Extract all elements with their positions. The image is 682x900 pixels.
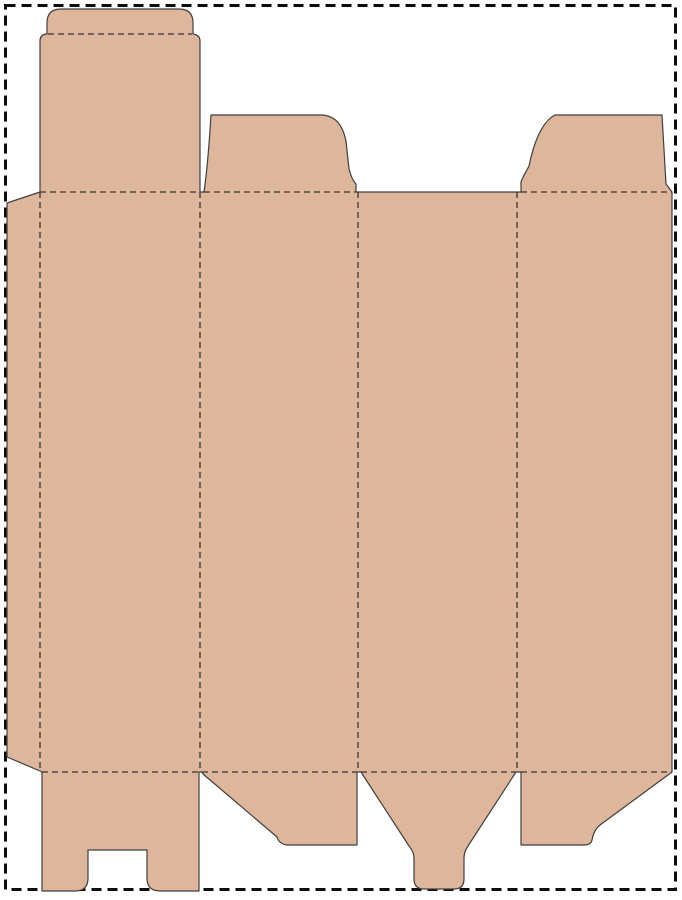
box-dieline-diagram	[0, 0, 682, 900]
side-panel-3	[358, 192, 517, 772]
bottom-slotted-flap	[42, 772, 199, 891]
bottom-tuck-tongue	[361, 772, 516, 889]
bottom-dust-flap-right	[521, 772, 672, 845]
side-panel-2	[200, 192, 358, 772]
side-panel-4	[517, 192, 672, 772]
side-panel-1	[40, 192, 200, 772]
top-lid-tuck-flap	[40, 9, 200, 192]
glue-flap	[7, 192, 40, 772]
bottom-dust-flap-left	[202, 772, 357, 845]
top-dust-flap-right	[521, 115, 672, 192]
top-dust-flap-left	[204, 115, 356, 192]
sheet-page	[0, 0, 682, 900]
